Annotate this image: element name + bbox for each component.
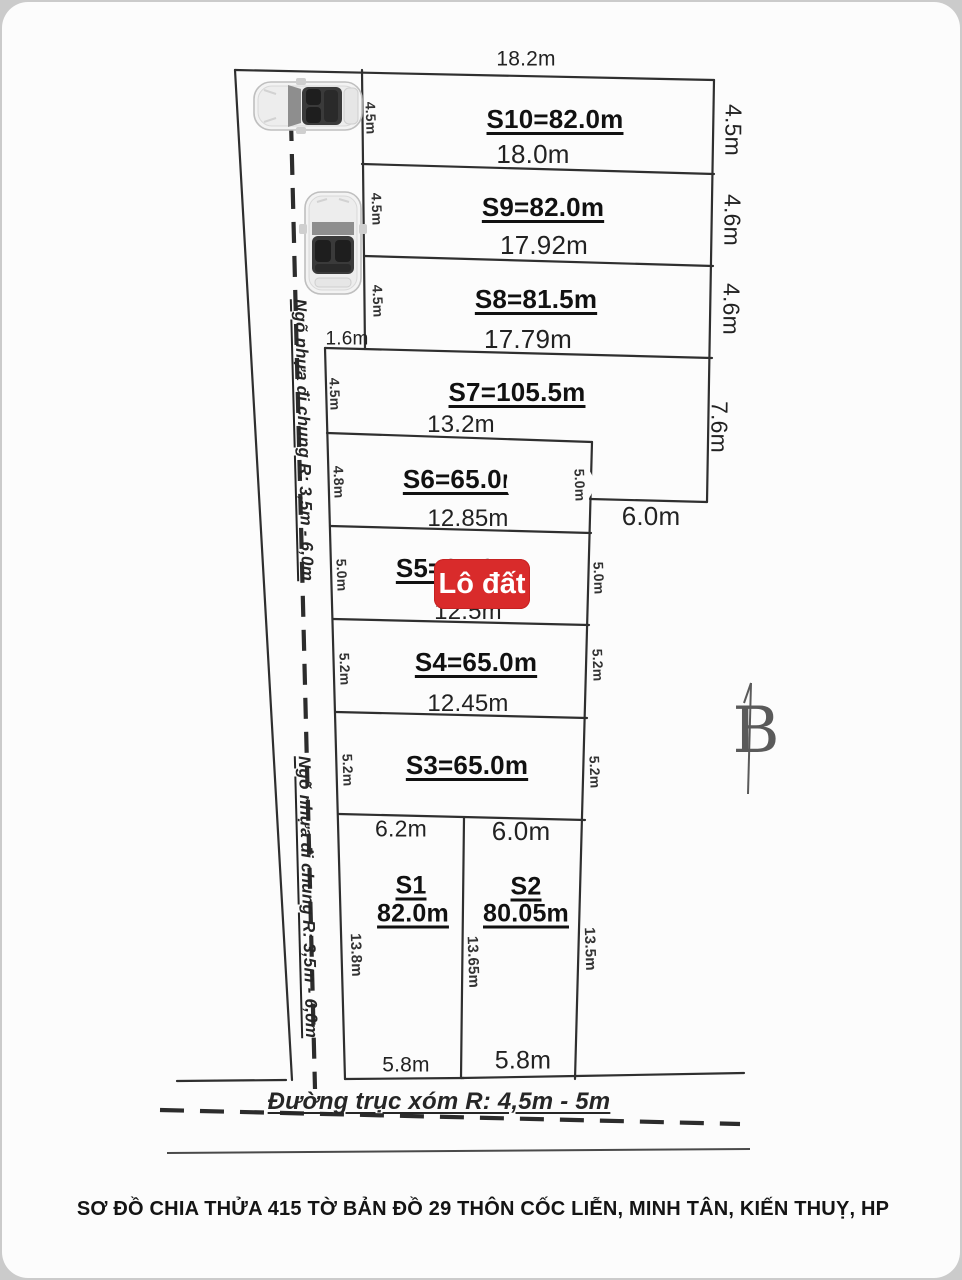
- plot-label-s9: S9=82.0m: [482, 194, 604, 220]
- dim-s1-top: 6.2m: [375, 818, 427, 841]
- plot-label-s3: S3=65.0m: [406, 752, 528, 778]
- dim-s1-left: 13.8m: [348, 933, 365, 977]
- dim-right-side-4: 7.6m: [707, 401, 730, 453]
- dim-s7-left: 4.5m: [327, 377, 342, 410]
- dim-s7-right-bottom: 6.0m: [622, 503, 681, 529]
- bottom-road-lower-edge-line: [167, 1149, 750, 1153]
- outer-left-boundary-line: [235, 70, 292, 1080]
- scanned-plan-card: 18.2m S10=82.0m 18.0m 4.5m 4.5m S9=82.0m…: [2, 2, 960, 1278]
- dim-s6-bottom: 12.85m: [427, 507, 508, 531]
- page-title: SƠ ĐỒ CHIA THỬA 415 TỜ BẢN ĐỒ 29 THÔN CỐ…: [77, 1199, 889, 1219]
- top-boundary-line: [235, 70, 714, 80]
- plots-left-edge-lower: [325, 348, 345, 1079]
- road-top-edge-right: [576, 1073, 744, 1076]
- dim-s2-right: 13.5m: [582, 927, 599, 971]
- plot-label-s1: S1: [396, 874, 427, 899]
- plot-label-s7: S7=105.5m: [449, 379, 586, 405]
- car1-mirror-bottom: [296, 127, 306, 134]
- plot-area-s2: 80.05m: [483, 902, 569, 927]
- lot-badge: Lô đất: [434, 559, 530, 609]
- dim-s3-left: 5.2m: [340, 753, 355, 786]
- dim-s7-bottom: 13.2m: [427, 413, 495, 437]
- lot-badge-label: Lô đất: [439, 568, 526, 601]
- car1-mirror-top: [296, 78, 306, 85]
- car-top-view-vertical: [299, 192, 367, 294]
- plot-label-s10: S10=82.0m: [487, 106, 624, 132]
- dim-s3-right: 5.2m: [587, 755, 602, 788]
- dim-right-side-1: 4.5m: [721, 104, 744, 156]
- dim-s9-left: 4.5m: [369, 192, 384, 225]
- dim-s9-bottom: 17.92m: [500, 232, 588, 258]
- car-top-view-horizontal: [254, 78, 362, 134]
- dim-s8-left: 4.5m: [370, 284, 385, 317]
- dim-s10-bottom: 18.0m: [496, 141, 569, 167]
- plot-area-s1: 82.0m: [377, 902, 449, 927]
- car1-windshield: [288, 85, 301, 127]
- car2-mirror-left: [299, 224, 307, 234]
- dim-right-side-2: 4.6m: [720, 194, 743, 246]
- s1-bottom-line: [345, 1078, 464, 1079]
- dim-s5-left: 5.0m: [334, 558, 349, 591]
- plot-label-s4: S4=65.0m: [415, 649, 537, 675]
- dim-top-width: 18.2m: [496, 49, 555, 70]
- road-top-edge-left: [177, 1080, 286, 1081]
- plot-label-s8: S8=81.5m: [475, 286, 597, 312]
- dim-s1-s2-mid: 13.65m: [465, 936, 482, 989]
- car2-mirror-right: [359, 224, 367, 234]
- s2-bottom-line: [461, 1076, 576, 1078]
- dim-s4-bottom: 12.45m: [427, 692, 508, 716]
- dim-s1-bottom: 5.8m: [382, 1055, 430, 1076]
- dim-s10-left: 4.5m: [363, 101, 378, 134]
- dim-step-width: 1.6m: [325, 330, 368, 349]
- dim-s5-right: 5.0m: [591, 561, 606, 594]
- dim-s2-bottom: 5.8m: [495, 1049, 551, 1074]
- dim-s6-left: 4.8m: [331, 465, 346, 498]
- plot-label-s2: S2: [511, 875, 542, 900]
- north-letter: B: [732, 694, 779, 768]
- dim-s8-bottom: 17.79m: [484, 326, 572, 352]
- dim-right-side-3: 4.6m: [719, 283, 742, 335]
- dim-s2-top: 6.0m: [492, 818, 551, 844]
- dim-s6-right: 5.0m: [572, 468, 587, 501]
- dim-s4-left: 5.2m: [337, 652, 352, 685]
- dim-s4-right: 5.2m: [590, 648, 605, 681]
- bottom-road-name: Đường trục xóm R: 4,5m - 5m: [268, 1090, 611, 1114]
- car2-windshield: [312, 222, 354, 235]
